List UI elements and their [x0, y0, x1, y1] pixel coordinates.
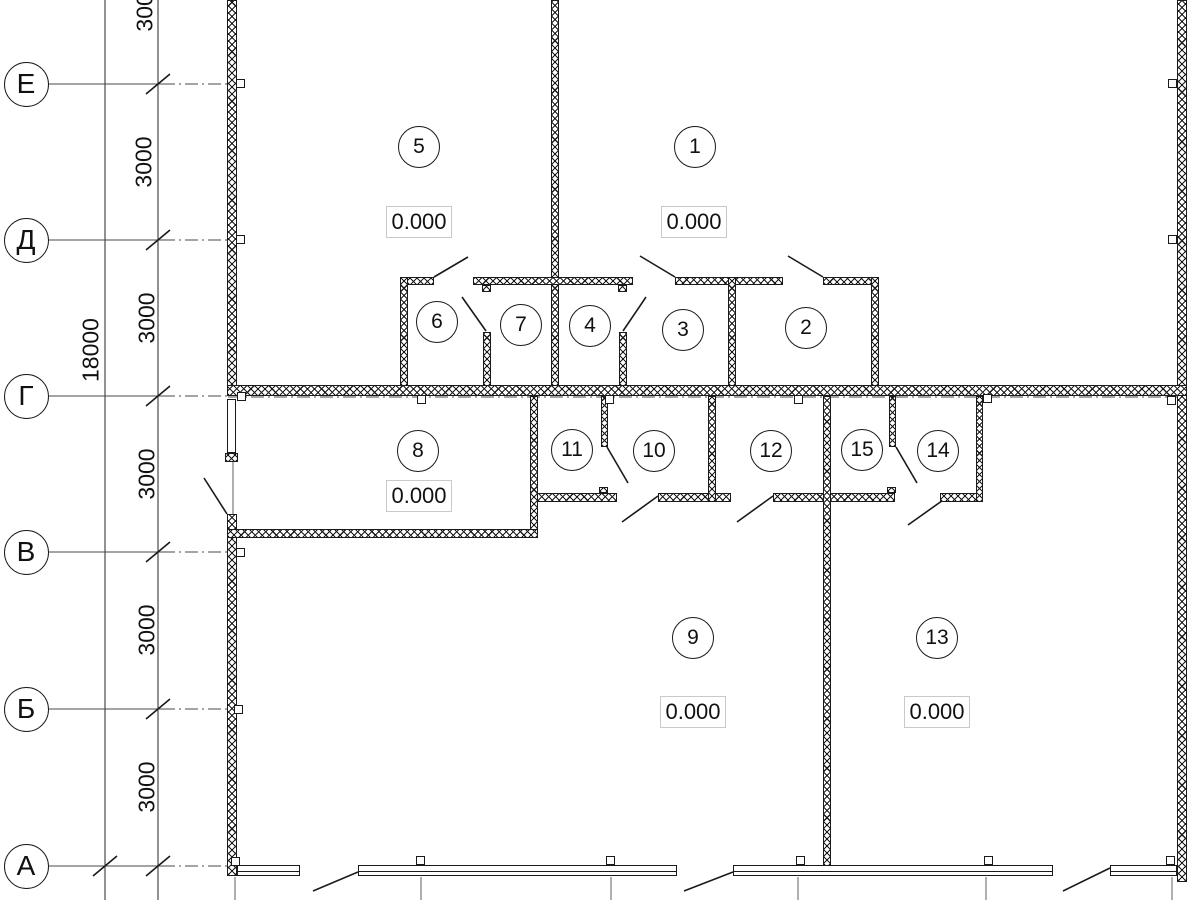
elevation-value: 0.000	[665, 699, 720, 725]
band-top-wall-b	[473, 277, 633, 285]
band2-bottom-wall-c	[773, 493, 895, 502]
room14-right-wall	[976, 396, 983, 502]
room-bubble-12: 12	[750, 430, 792, 472]
room-number: 13	[925, 626, 948, 650]
room-bubble-10: 10	[633, 430, 675, 472]
door-leaf	[623, 297, 646, 331]
grid-marker	[1167, 396, 1176, 405]
dimension-label-18000: 18000	[78, 318, 105, 382]
room-number: 2	[800, 316, 812, 340]
window-sill-2	[358, 865, 677, 876]
left-wall-end-cap	[225, 453, 238, 462]
grid-marker	[236, 235, 245, 244]
wall-8-11	[530, 396, 538, 538]
dimension-label-3000: 3000	[132, 0, 159, 32]
room-bubble-15: 15	[841, 429, 883, 471]
grid-marker	[234, 705, 243, 714]
elevation-label-room-9: 0.000	[660, 696, 726, 728]
room-number: 4	[584, 314, 596, 338]
grid-marker	[1168, 79, 1177, 88]
stub-11-10-bottom	[599, 487, 608, 493]
grid-marker	[236, 79, 245, 88]
axis-label: В	[17, 536, 36, 568]
door-leaf	[607, 447, 628, 483]
grid-marker	[984, 856, 993, 865]
window-sill-3	[733, 865, 1053, 876]
room-number: 10	[642, 439, 665, 463]
stub-6-7-top	[482, 285, 491, 292]
window-sill-1	[237, 865, 300, 876]
stub-15-14-bottom	[887, 487, 896, 493]
axis-label: Д	[17, 224, 36, 256]
wall-6-7-lower	[483, 332, 491, 386]
axis-label: А	[17, 850, 36, 882]
door-leaf	[640, 256, 675, 277]
grid-marker	[231, 857, 240, 866]
wall-3-2	[728, 277, 736, 386]
room-number: 7	[515, 313, 527, 337]
elevation-label-room-5: 0.000	[386, 206, 452, 238]
room-number: 5	[413, 135, 425, 159]
axis-bubble-Г: Г	[4, 374, 49, 419]
window-mid-line	[359, 871, 676, 872]
room-bubble-6: 6	[416, 301, 458, 343]
wall-rooms-5-1	[551, 0, 559, 386]
elevation-value: 0.000	[391, 483, 446, 509]
room-bubble-7: 7	[500, 304, 542, 346]
room-number: 9	[687, 626, 699, 650]
door-leaf	[434, 257, 468, 277]
room-number: 3	[677, 318, 689, 342]
door-leaf	[896, 447, 917, 483]
elevation-label-room-13: 0.000	[904, 696, 970, 728]
axis-label: Е	[17, 68, 36, 100]
dimension-label-3000: 3000	[134, 761, 161, 812]
room-bubble-3: 3	[662, 309, 704, 351]
grid-marker	[236, 548, 245, 557]
door-leaf	[1063, 868, 1110, 891]
left-wall-upper	[227, 0, 237, 396]
wall-15-14	[889, 396, 896, 447]
elevation-label-room-1: 0.000	[661, 206, 727, 238]
room-number: 15	[850, 438, 873, 462]
room-bubble-14: 14	[917, 430, 959, 472]
left-wall-lower	[227, 514, 237, 876]
door-leaf	[684, 872, 733, 891]
elevation-value: 0.000	[909, 699, 964, 725]
dimension-label-3000: 3000	[134, 604, 161, 655]
grid-marker	[1168, 235, 1177, 244]
room-bubble-13: 13	[916, 617, 958, 659]
door-leaf	[737, 496, 773, 522]
window-mid-line	[1111, 871, 1176, 872]
elevation-value: 0.000	[391, 209, 446, 235]
room-bubble-11: 11	[551, 429, 593, 471]
axis-bubble-В: В	[4, 530, 49, 575]
door-leaf	[788, 256, 823, 277]
axis-label: Б	[17, 693, 35, 725]
door-leaf	[204, 478, 227, 514]
room-number: 8	[412, 439, 424, 463]
grid-marker	[794, 395, 803, 404]
axis-bubble-Б: Б	[4, 687, 49, 732]
axis-bubble-А: А	[4, 844, 49, 889]
room-number: 14	[926, 439, 949, 463]
right-wall	[1177, 0, 1187, 882]
stub-4-3-top	[618, 285, 627, 292]
room-bubble-1: 1	[674, 126, 716, 168]
room6-left-wall	[400, 277, 408, 386]
door-leaf	[622, 496, 658, 522]
room-number: 11	[561, 438, 583, 462]
wall-4-3-lower	[619, 332, 627, 386]
axis-bubble-Е: Е	[4, 62, 49, 107]
room2-right-wall	[871, 277, 879, 386]
room-number: 12	[759, 439, 782, 463]
wall-9-13	[823, 396, 831, 866]
room-bubble-8: 8	[397, 430, 439, 472]
grid-marker	[416, 856, 425, 865]
door-leaf	[462, 297, 486, 331]
elevation-value: 0.000	[666, 209, 721, 235]
window-mid-line	[238, 871, 299, 872]
room-bubble-2: 2	[785, 307, 827, 349]
drawing-lines-layer	[0, 0, 1200, 900]
grid-marker	[237, 392, 246, 401]
door-leaf	[313, 872, 358, 891]
door-leaf	[908, 498, 946, 525]
dimension-label-3000: 3000	[131, 136, 158, 187]
window-mid-line	[734, 871, 1052, 872]
band2-bottom-wall-a	[537, 493, 617, 502]
wall-axis-g	[227, 385, 1187, 396]
window-sill-4	[1110, 865, 1177, 876]
grid-marker	[1166, 856, 1175, 865]
room-bubble-9: 9	[672, 617, 714, 659]
grid-marker	[983, 394, 992, 403]
grid-marker	[796, 856, 805, 865]
grid-marker	[605, 395, 614, 404]
room-bubble-4: 4	[569, 305, 611, 347]
wall-10-12	[708, 396, 716, 502]
room-number: 1	[689, 135, 701, 159]
floor-plan-canvas: ЕДГВБА3000300030003000300030001800010.00…	[0, 0, 1200, 900]
axis-label: Г	[18, 380, 33, 412]
dimension-label-3000: 3000	[134, 448, 161, 499]
room-number: 6	[431, 310, 443, 334]
room8-bottom-wall	[227, 529, 538, 538]
left-wall-pier-window	[227, 399, 236, 453]
elevation-label-room-8: 0.000	[386, 480, 452, 512]
grid-marker	[417, 395, 426, 404]
dimension-label-3000: 3000	[134, 292, 161, 343]
axis-bubble-Д: Д	[4, 218, 49, 263]
room-bubble-5: 5	[398, 126, 440, 168]
grid-marker	[606, 856, 615, 865]
band2-bottom-wall-b	[658, 493, 731, 502]
